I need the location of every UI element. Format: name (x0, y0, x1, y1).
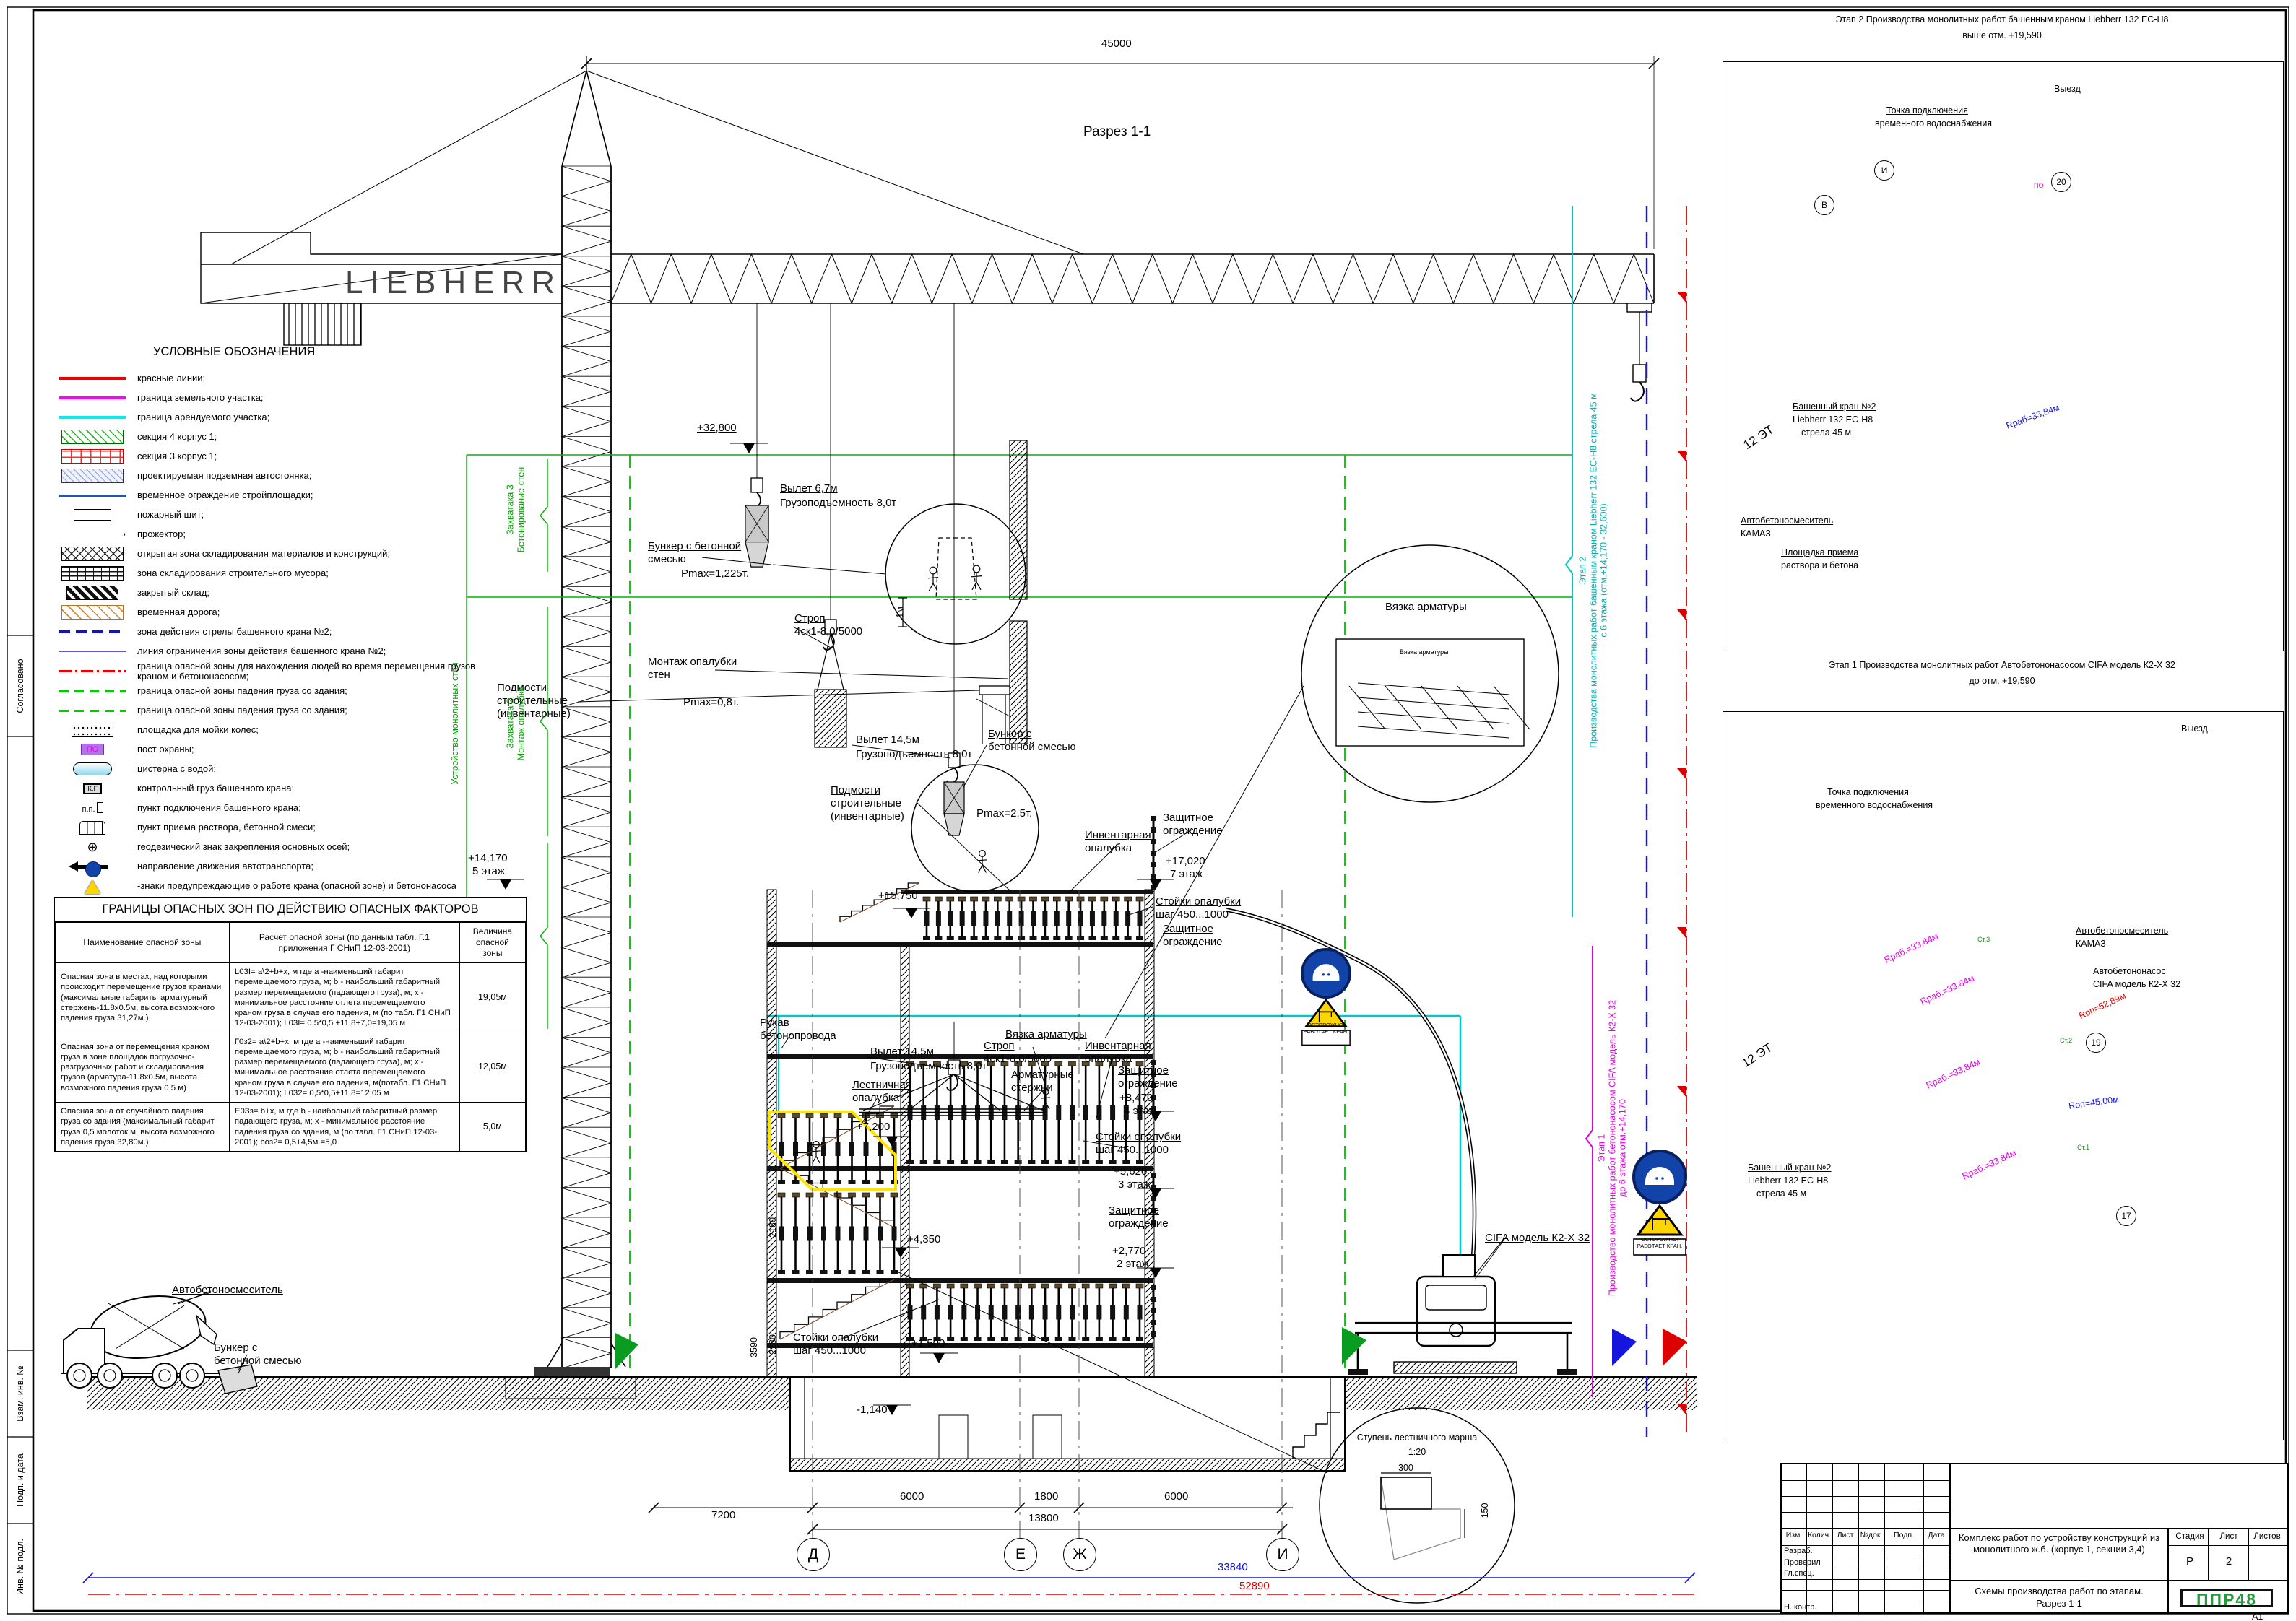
axis-Zh: Ж (1063, 1538, 1096, 1571)
side-soglasovano: Согласовано (15, 659, 26, 713)
strop2-l2: 4ск1-8,0/5000 (984, 1053, 1052, 1065)
legend-item: красные линии; (59, 369, 485, 388)
legend-item: временное ограждение стройплощадки; (59, 486, 485, 505)
cell-value: 12,05м (459, 1033, 525, 1103)
zashch-c-l1: Защитное (1118, 1064, 1169, 1077)
legend-item-label: граница земельного участка; (137, 393, 264, 403)
cell-name: Опасная зона от перемещения краном груза… (56, 1033, 230, 1103)
legend-symbol (59, 762, 126, 776)
hazard-table-row: Опасная зона от перемещения краном груза… (56, 1033, 526, 1103)
zashch-b-l1: Защитное (1163, 923, 1213, 935)
tb-col-3: №док. (1858, 1531, 1884, 1539)
dim-1800: 1800 (1034, 1490, 1058, 1503)
tb-listov-h: Листов (2248, 1532, 2286, 1541)
stoiki-b-l1: Стойки опалубки (1096, 1131, 1181, 1143)
cifa-callout: CIFA модель К2-Х 32 (1485, 1232, 1590, 1244)
tb-col-5: Дата (1923, 1531, 1949, 1539)
tb-role-2: Гл.спец. (1784, 1569, 1832, 1578)
legend-item-label: секция 4 корпус 1; (137, 432, 217, 442)
legend-symbol (59, 410, 126, 425)
legend-item: проектируемая подземная автостоянка; (59, 466, 485, 485)
dim-52890: 52890 (1239, 1580, 1270, 1592)
legend-item: открытая зона складирования материалов и… (59, 544, 485, 563)
legend-symbol (59, 820, 126, 835)
legend-item-label: зона действия стрелы башенного крана №2; (137, 627, 332, 637)
floor-7: 7 этаж (1170, 868, 1203, 880)
floor-4: 4 этаж (1124, 1105, 1156, 1117)
p2-exit: Выезд (2054, 84, 2081, 95)
legend-symbol (59, 391, 126, 405)
tb-doc-subtitle: Схемы производства работ по этапам.Разре… (1951, 1581, 2167, 1612)
vylet-145-b: Вылет 14,5м (870, 1046, 934, 1058)
col-value: Величина опасной зоны (459, 923, 525, 963)
legend-item-label: -знаки предупреждающие о работе крана (о… (137, 881, 456, 891)
gruz-8-0: Грузоподъемность 8,0т (780, 497, 896, 509)
legend-item: площадка для мойки колес; (59, 721, 485, 739)
caution-board-b: ОСТОРОЖНО!РАБОТАЕТ КРАН. (1299, 1022, 1353, 1035)
p1-st1: Ст.1 (2077, 1144, 2089, 1151)
legend-item-label: временное ограждение стройплощадки; (137, 490, 313, 500)
hazard-zones-table: ГРАНИЦЫ ОПАСНЫХ ЗОН ПО ДЕЙСТВИЮ ОПАСНЫХ … (54, 897, 527, 1152)
level-4350: +4,350 (907, 1233, 940, 1246)
invent1-l2: опалубка (1085, 842, 1132, 854)
detail-stair-scale: 1:20 (1408, 1447, 1426, 1458)
legend-item-label: закрытый склад; (137, 588, 209, 598)
legend-item: пункт приема раствора, бетонной смеси; (59, 818, 485, 837)
legend-item-label: прожектор; (137, 529, 186, 539)
legend-item: К.Г контрольный груз башенного крана; (59, 779, 485, 798)
legend-item-label: направление движения автотранспорта; (137, 861, 313, 872)
p2-axis-v: В (1814, 195, 1834, 215)
dim-7200: 7200 (711, 1509, 735, 1521)
stage1-vertical: Этап 1 Производство монолитных работ бет… (1596, 1000, 1628, 1296)
legend-symbol (59, 723, 126, 737)
tb-col-1: Колич. (1806, 1531, 1832, 1539)
legend-symbol: К.Г (59, 781, 126, 796)
tb-line (1782, 1590, 1949, 1591)
legend-item-label: пункт приема раствора, бетонной смеси; (137, 822, 316, 833)
stoiki-a-l2: шаг 450...1000 (1156, 908, 1229, 921)
legend-item: цистерна с водой; (59, 760, 485, 778)
detail-rebar-inner-title: Вязка арматуры (1400, 648, 1449, 656)
gruz-8-0-c: Грузоподъемность 8,0т (870, 1060, 987, 1072)
legend-symbol (59, 566, 126, 581)
level-8470: +8,470 (1119, 1092, 1153, 1104)
legend-item: -знаки предупреждающие о работе крана (о… (59, 877, 485, 895)
legend-item: закрытый склад; (59, 583, 485, 602)
legend-item: зона складирования строительного мусора; (59, 564, 485, 583)
plan2-subtitle: выше отм. +19,590 (1962, 30, 2042, 41)
title-block: Комплекс работ по устройству конструкций… (1780, 1463, 2289, 1614)
level-15750: +15,750 (878, 890, 918, 902)
level-1500: +1,500 (911, 1337, 945, 1350)
tb-role-0: Разраб. (1784, 1547, 1832, 1555)
legend-item: граница опасной зоны для нахождения люде… (59, 661, 485, 681)
dim-6000-b: 6000 (1164, 1490, 1188, 1503)
strop1-l1: Строп (794, 612, 826, 625)
p2-platform-l1: Площадка приема (1781, 547, 1858, 558)
bunker2-l1: Бункер с (988, 728, 1031, 740)
bunker2-l2: бетонной смесью (988, 741, 1076, 753)
vylet-6-7: Вылет 6,7м (780, 482, 838, 495)
stoiki-c-l2: шаг 450...1000 (793, 1344, 866, 1357)
side-inv: Инв. № подл. (15, 1539, 26, 1595)
invent2-l1: Инвентарная (1085, 1040, 1151, 1052)
p2-water-l1: Точка подключения (1886, 105, 1968, 116)
pmax-25: Pmax=2,5т. (976, 807, 1032, 820)
level-5620: +5,620 (1114, 1165, 1147, 1178)
zashch-d-l1: Защитное (1109, 1204, 1159, 1217)
p2-crane-l2: Liebherr 132 EC-H8 (1793, 414, 1873, 425)
legend-symbol (59, 703, 126, 718)
level-17020: +17,020 (1166, 855, 1205, 867)
plan1-title: Этап 1 Производства монолитных работ Авт… (1829, 660, 2175, 671)
p2-mixer-l2: КАМАЗ (1741, 529, 1771, 539)
legend-item: ⊕ геодезический знак закрепления основны… (59, 838, 485, 856)
bunker3-l2: бетонной смесью (214, 1355, 302, 1367)
legend-symbol (59, 586, 126, 600)
legend-item-label: контрольный груз башенного крана; (137, 783, 294, 794)
tb-line (1782, 1579, 1949, 1580)
zahvatka-3: Захватака 3Бетонирование стен (506, 467, 527, 553)
legend-item-label: цистерна с водой; (137, 764, 216, 774)
rukav-l2: бетонопровода (760, 1030, 836, 1042)
cell-value: 19,05м (459, 963, 525, 1033)
tb-line (1782, 1557, 1949, 1557)
podmosti-r-l3: (инвентарные) (831, 810, 904, 822)
cell-name: Опасная зона в местах, над которыми прои… (56, 963, 230, 1033)
p1-num-17: 17 (2116, 1206, 2136, 1226)
dim-3590: 3590 (749, 1337, 760, 1357)
legend-item-label: пункт подключения башенного крана; (137, 803, 301, 813)
p1-exit: Выезд (2181, 723, 2208, 734)
p1-pump-l1: Автобетононасос (2093, 966, 2166, 977)
tb-stage-v: Р (2170, 1555, 2209, 1568)
pmax-08: Pmax=0,8т. (683, 696, 739, 708)
legend-symbol: ПО (59, 742, 126, 757)
dim-1m: 1м (895, 607, 906, 618)
detail-rebar-title: Вязка арматуры (1385, 601, 1467, 613)
legend-item: п.п. пункт подключения башенного крана; (59, 799, 485, 817)
tb-line (2167, 1528, 2169, 1612)
dim-2180-b: 2180 (768, 1334, 779, 1355)
legend-symbol (59, 371, 126, 386)
legend-item-label: граница опасной зоны падения груза со зд… (137, 686, 347, 696)
legend-item-label: зона складирования строительного мусора; (137, 568, 329, 578)
dim-13800: 13800 (1028, 1512, 1059, 1524)
p1-mixer-l1: Автобетоносмеситель (2076, 926, 2168, 936)
legend-item-label: площадка для мойки колес; (137, 725, 259, 735)
dim-2180-a: 2180 (768, 1217, 779, 1238)
p1-crane-l2: Liebherr 132 EC-H8 (1748, 1175, 1828, 1186)
zashch-b-l2: ограждение (1163, 936, 1223, 948)
legend-item-label: граница арендуемого участка; (137, 412, 269, 422)
vyazka-callout: Вязка арматуры (1005, 1028, 1087, 1040)
legend-item: граница земельного участка; (59, 388, 485, 407)
legend-item: секция 4 корпус 1; (59, 427, 485, 446)
legend-item-label: проектируемая подземная автостоянка; (137, 471, 311, 481)
p1-crane-l1: Башенный кран №2 (1748, 1162, 1832, 1173)
caution-board-a: ОСТОРОЖНО!РАБОТАЕТ КРАН. (1631, 1237, 1689, 1249)
cell-value: 5,0м (459, 1103, 525, 1152)
zashch-c-l2: ограждение (1118, 1077, 1178, 1090)
level-32800: +32,800 (697, 422, 737, 434)
legend-symbol (59, 625, 126, 639)
legend-item: пожарный щит; (59, 505, 485, 524)
legend-item: линия ограничения зоны действия башенног… (59, 642, 485, 661)
p1-num-19: 19 (2086, 1033, 2106, 1053)
p1-pump-l2: CIFA модель К2-Х 32 (2093, 979, 2180, 990)
p2-platform-l2: раствора и бетона (1781, 560, 1858, 571)
bunker3-l1: Бункер с (214, 1342, 257, 1354)
montazh-l2: стен (648, 669, 670, 681)
p2-crane-l1: Башенный кран №2 (1793, 401, 1876, 412)
legend: УСЛОВНЫЕ ОБОЗНАЧЕНИЯ красные линии; гран… (59, 345, 485, 916)
armat-l1: Арматурные (1011, 1069, 1074, 1081)
legend-title: УСЛОВНЫЕ ОБОЗНАЧЕНИЯ (153, 345, 485, 359)
tb-list-h: Лист (2211, 1532, 2247, 1541)
legend-item: секция 3 корпус 1; (59, 447, 485, 466)
legend-item-label: временная дорога; (137, 607, 220, 617)
side-podp: Подп. и дата (15, 1453, 26, 1507)
lestn-l2: опалубка (852, 1092, 899, 1104)
axis-D: Д (797, 1538, 830, 1571)
tb-col-2: Лист (1832, 1531, 1858, 1539)
level-2770: +2,770 (1112, 1245, 1145, 1257)
rukav-l1: Рукав (760, 1017, 789, 1029)
podmosti-r-l1: Подмости (831, 784, 880, 796)
legend-symbol (59, 547, 126, 561)
dim-6000-a: 6000 (900, 1490, 924, 1503)
floor-3: 3 этаж (1118, 1178, 1151, 1191)
strop2-l1: Строп (984, 1040, 1015, 1052)
p1-mixer-l2: КАМАЗ (2076, 939, 2106, 949)
legend-item-label: граница опасной зоны для нахождения люде… (137, 661, 485, 681)
legend-item-label: пожарный щит; (137, 510, 204, 520)
tb-line (1949, 1528, 2287, 1529)
p1-water-l1: Точка подключения (1827, 787, 1909, 798)
bunker1-l1: Бункер с бетонной (648, 540, 741, 552)
legend-symbol (59, 605, 126, 620)
p1-st2: Ст.2 (2060, 1037, 2072, 1044)
level-m1140: -1,140 (857, 1404, 888, 1416)
section-title: Разрез 1-1 (1083, 124, 1151, 140)
tb-col-0: Изм. (1782, 1531, 1806, 1539)
legend-items: красные линии; граница земельного участк… (59, 369, 485, 915)
legend-symbol (59, 644, 126, 659)
p2-axis-i: И (1874, 160, 1894, 181)
cell-calc: L03I= а\2+b+х, м где а -наименьший габар… (229, 963, 459, 1033)
strop1-l2: 4ск1-8,0/5000 (794, 625, 862, 638)
tb-col-4: Подп. (1884, 1531, 1923, 1539)
p2-po: ПО (2034, 182, 2043, 189)
zahvatka-2: Захватака 2Монтаж опалубки (506, 687, 527, 761)
legend-item: граница арендуемого участка; (59, 408, 485, 427)
p1-st3: Ст.3 (1977, 936, 1990, 943)
tb-line (1782, 1568, 1949, 1568)
tb-line (1782, 1602, 1949, 1602)
detail-stair-300: 300 (1398, 1463, 1413, 1474)
legend-item: зона действия стрелы башенного крана №2; (59, 622, 485, 641)
detail-stair-150: 150 (1480, 1503, 1491, 1518)
p2-crane-l3: стрела 45 м (1801, 427, 1851, 438)
floor-2: 2 этаж (1117, 1258, 1149, 1270)
legend-item: граница опасной зоны падения груза со зд… (59, 682, 485, 700)
plan2-title: Этап 2 Производства монолитных работ баш… (1836, 14, 2169, 25)
tb-line (2208, 1528, 2209, 1580)
legend-symbol (59, 664, 126, 679)
col-calc: Расчет опасной зоны (по данным табл. Г.1… (229, 923, 459, 963)
tb-line (2248, 1528, 2249, 1580)
lestn-l1: Лестничная (852, 1079, 911, 1091)
mixer-callout: Автобетоносмеситель (172, 1284, 283, 1296)
legend-item: ◑ прожектор; (59, 525, 485, 544)
cell-calc: Г0з2= а\2+b+х, м где а -наименьший габар… (229, 1033, 459, 1103)
stage2-vertical: Этап 2 Производства монолитных работ баш… (1577, 393, 1609, 747)
p2-num-20: 20 (2051, 172, 2071, 192)
hazard-table-header: Наименование опасной зоны Расчет опасной… (56, 923, 526, 963)
zashch-a-l2: ограждение (1163, 825, 1223, 837)
stoiki-c-l1: Стойки опалубки (793, 1331, 878, 1344)
level-7200: +7,200 (857, 1121, 890, 1133)
tb-logo: ППР48 (2180, 1589, 2273, 1607)
zashch-a-l1: Защитное (1163, 812, 1213, 824)
cell-calc: Е0Зз= b+х, м где b - наибольший габаритн… (229, 1103, 459, 1152)
col-name: Наименование опасной зоны (56, 923, 230, 963)
legend-symbol: п.п. (59, 801, 126, 815)
legend-item: граница опасной зоны падения груза со зд… (59, 701, 485, 720)
hazard-table-title: ГРАНИЦЫ ОПАСНЫХ ЗОН ПО ДЕЙСТВИЮ ОПАСНЫХ … (55, 898, 526, 922)
warning-signs (1302, 949, 1686, 1255)
legend-symbol: ⊕ (59, 840, 126, 854)
legend-item: направление движения автотранспорта; (59, 857, 485, 876)
axis-I: И (1266, 1538, 1299, 1571)
montazh-l1: Монтаж опалубки (648, 656, 737, 668)
stoiki-b-l2: шаг 450...1000 (1096, 1144, 1169, 1156)
legend-symbol (59, 684, 126, 698)
legend-symbol (59, 508, 126, 522)
bunker1-l2: смесью (648, 553, 686, 565)
vylet-145-a: Вылет 14,5м (856, 734, 919, 746)
invent1-l1: Инвентарная (1085, 829, 1151, 841)
cell-name: Опасная зона от случайного падения груза… (56, 1103, 230, 1152)
tb-role-1: Проверил (1784, 1558, 1832, 1567)
legend-item-label: открытая зона складирования материалов и… (137, 549, 390, 559)
legend-item-label: линия ограничения зоны действия башенног… (137, 646, 386, 656)
crane-brand-label: LIEBHERR (345, 264, 562, 301)
legend-item-label: пост охраны; (137, 744, 194, 755)
podmosti-r-l2: строительные (831, 797, 901, 809)
legend-symbol: ◑ (59, 527, 126, 542)
drawing-sheet: Разрез 1-1 45000 LIEBHERR +32,800 Вылет … (0, 0, 2296, 1621)
legend-item-label: граница опасной зоны падения груза со зд… (137, 705, 347, 716)
stoiki-a-l1: Стойки опалубки (1156, 895, 1241, 908)
dim-45000: 45000 (1101, 38, 1132, 50)
tb-list-v: 2 (2211, 1555, 2247, 1568)
legend-symbol (59, 879, 126, 893)
detail-stair-title: Ступень лестничного марша (1357, 1433, 1477, 1443)
zashch-d-l2: ограждение (1109, 1217, 1169, 1230)
tb-stage-h: Стадия (2170, 1532, 2209, 1541)
side-vzam: Взам. инв. № (15, 1365, 26, 1421)
legend-symbol (59, 469, 126, 483)
legend-symbol (59, 430, 126, 444)
plan1-subtitle: до отм. +19,590 (1969, 676, 2035, 687)
legend-item-label: секция 3 корпус 1; (137, 451, 217, 461)
plan-stage1-panel (1723, 711, 2284, 1440)
legend-symbol (59, 488, 126, 503)
legend-item-label: геодезический знак закрепления основных … (137, 842, 350, 852)
p1-water-l2: временного водоснабжения (1816, 800, 1933, 811)
tb-role-5: Н. контр. (1784, 1603, 1832, 1612)
p2-water-l2: временного водоснабжения (1875, 118, 1992, 129)
dim-33840: 33840 (1218, 1561, 1248, 1573)
invent2-l2: опалубка (1085, 1053, 1132, 1065)
p1-crane-l3: стрела 45 м (1756, 1188, 1806, 1199)
pmax-1225: Pmax=1,225т. (681, 568, 749, 580)
gruz-8-0-b: Грузоподъемность 8,0т (856, 748, 972, 760)
armat-l2: стержни (1011, 1082, 1053, 1094)
axis-E: Е (1004, 1538, 1037, 1571)
tb-line (1949, 1580, 2287, 1581)
hazard-table-row: Опасная зона в местах, над которыми прои… (56, 963, 526, 1033)
tb-line (2167, 1545, 2287, 1546)
legend-symbol (59, 449, 126, 464)
tb-doc-title: Комплекс работ по устройству конструкций… (1951, 1529, 2167, 1580)
legend-item: временная дорога; (59, 603, 485, 622)
legend-item: ПО пост охраны; (59, 740, 485, 759)
legend-item-label: красные линии; (137, 373, 205, 383)
p2-mixer-l1: Автобетоносмеситель (1741, 516, 1833, 526)
tb-line (1949, 1464, 1951, 1612)
hazard-table-row: Опасная зона от случайного падения груза… (56, 1103, 526, 1152)
